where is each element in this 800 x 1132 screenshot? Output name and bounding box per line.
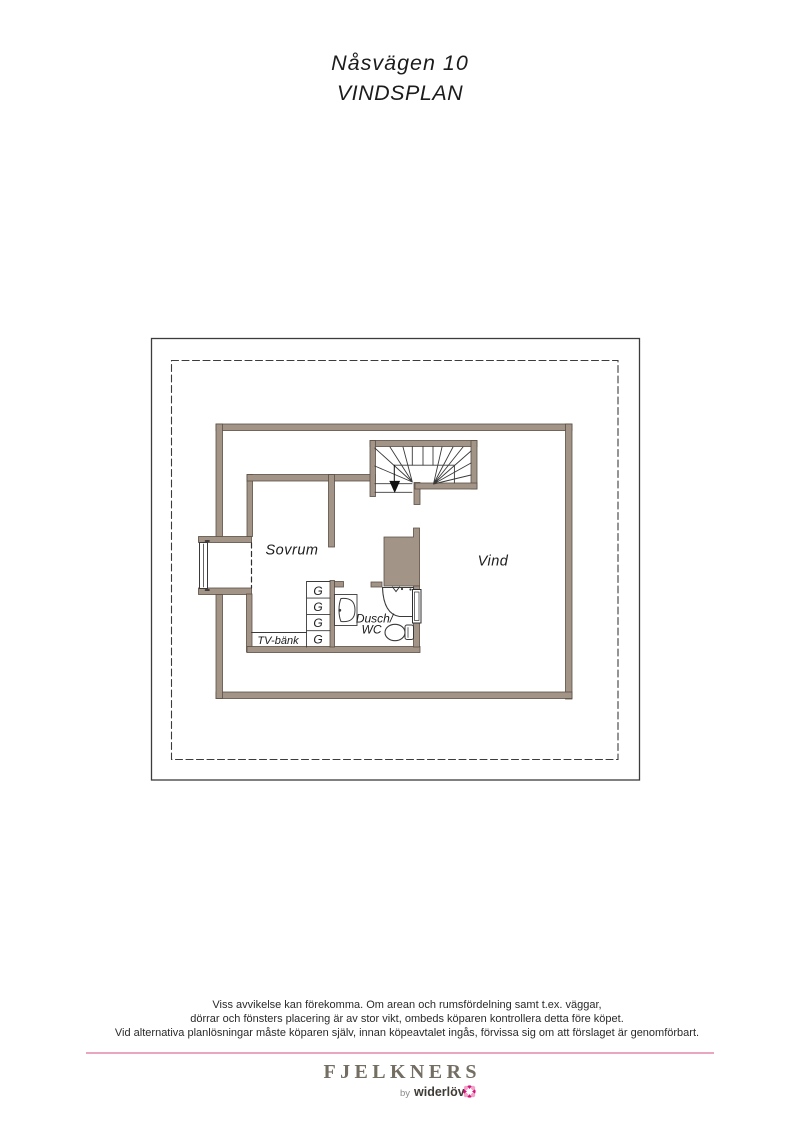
svg-text:TV-bänk: TV-bänk: [257, 635, 299, 647]
svg-text:WC: WC: [362, 623, 382, 637]
svg-text:G: G: [313, 616, 322, 630]
svg-text:G: G: [313, 633, 322, 647]
svg-text:Sovrum: Sovrum: [266, 543, 319, 559]
svg-text:Vind: Vind: [478, 554, 509, 570]
svg-text:G: G: [313, 584, 322, 598]
svg-text:G: G: [313, 600, 322, 614]
